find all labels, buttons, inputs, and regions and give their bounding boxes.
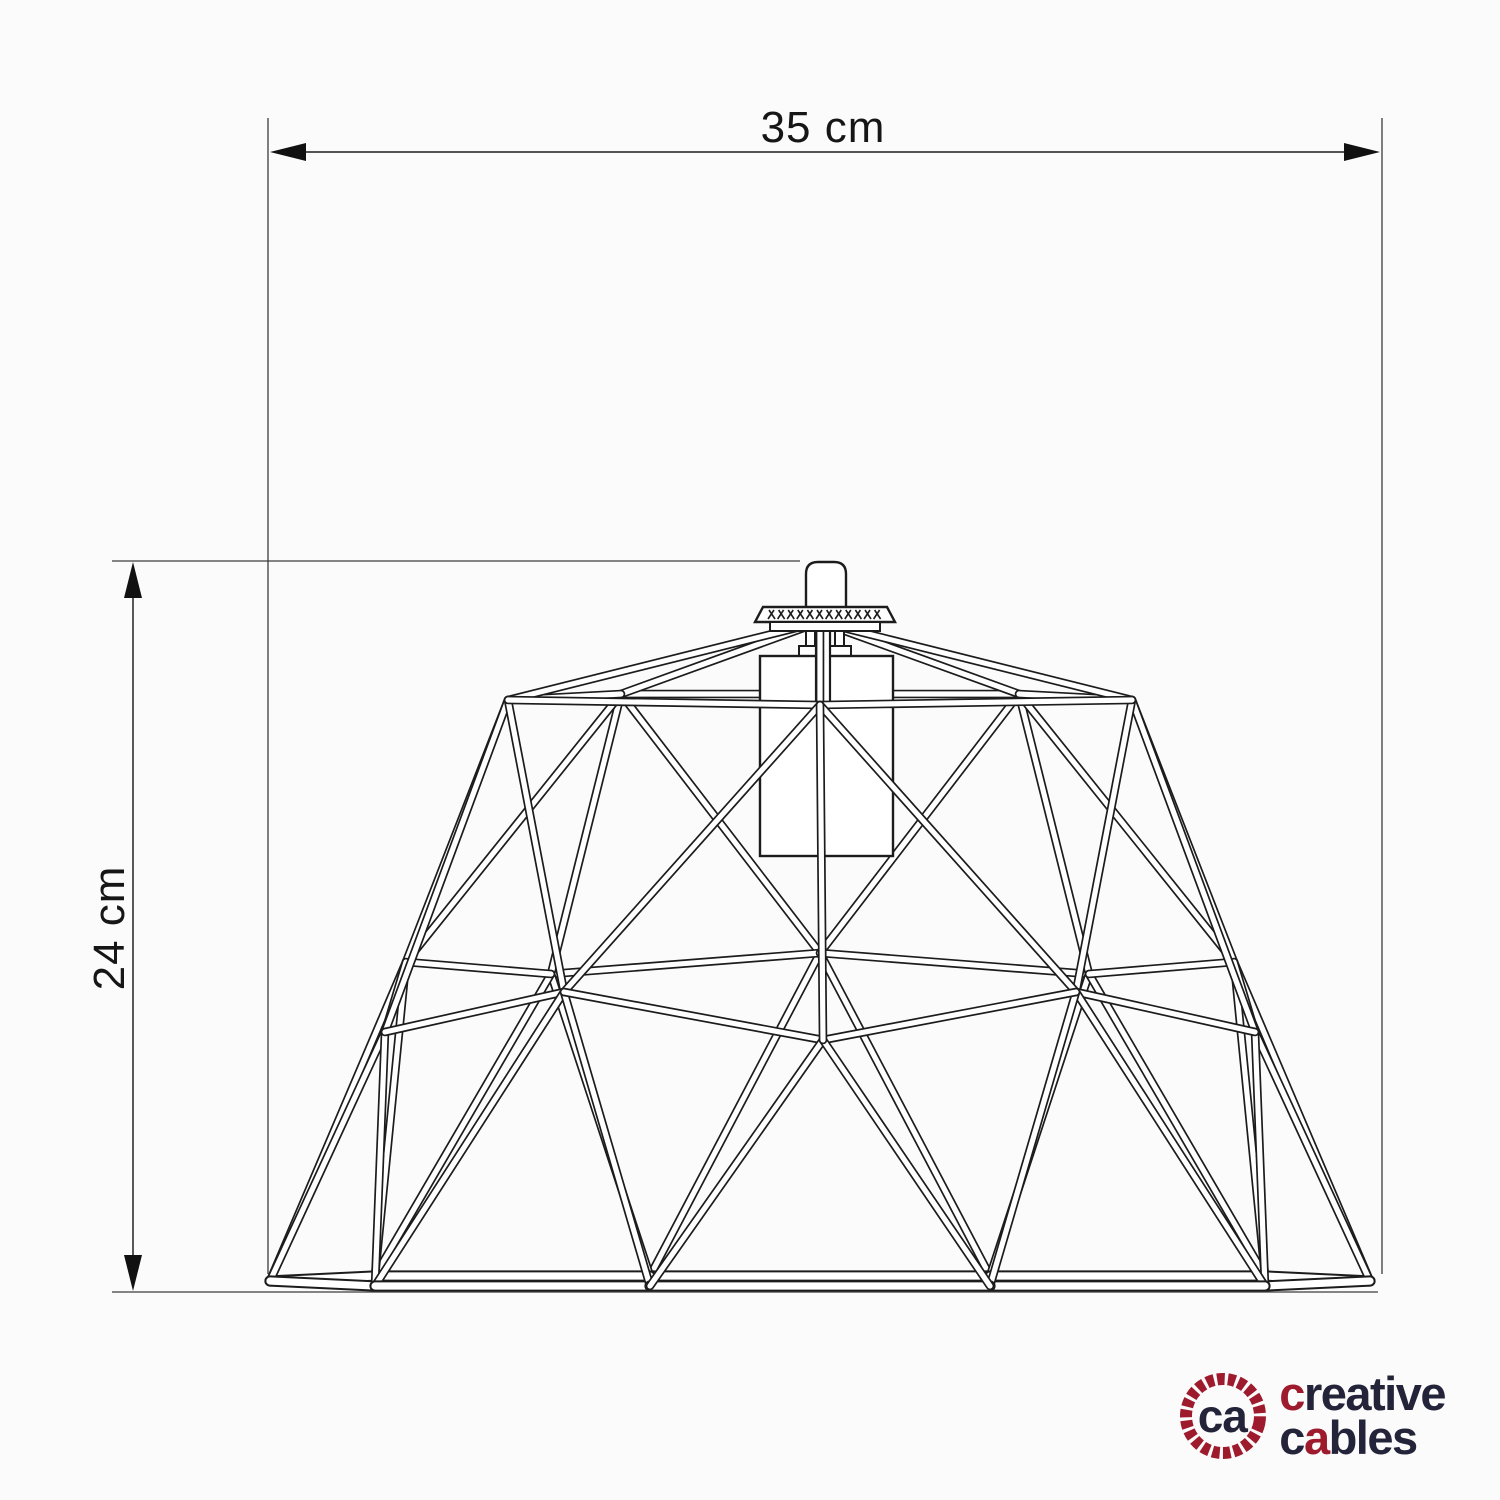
arrow-right-icon <box>1344 143 1380 161</box>
cage-strut <box>1255 1032 1370 1281</box>
arrow-left-icon <box>270 143 306 161</box>
cage-strut <box>270 1281 375 1286</box>
top-mount <box>755 562 895 631</box>
cage-strut <box>650 1040 823 1286</box>
logo-line2-c: c <box>1279 1411 1304 1464</box>
logo-line2-text: bles <box>1329 1411 1417 1464</box>
logo-line2: cables <box>1279 1416 1445 1460</box>
cage-strut <box>1076 992 1265 1286</box>
cage-strut <box>564 992 650 1286</box>
dimension-drawing: 35 cm 24 cm <box>0 0 1500 1500</box>
dimension-height <box>112 561 1378 1292</box>
height-label: 24 cm <box>85 866 134 991</box>
cage-strut <box>823 1040 990 1286</box>
cage-strut <box>270 1032 385 1281</box>
logo-line2-accent: a <box>1304 1411 1329 1464</box>
cage-front-struts <box>270 622 1370 1286</box>
cage-strut <box>508 700 564 992</box>
arrow-down-icon <box>124 1255 142 1291</box>
cage-strut <box>820 953 990 1276</box>
logo-wordmark: creative cables <box>1279 1372 1445 1459</box>
brand-logo: ca creative cables <box>1177 1370 1445 1462</box>
mount-plate-top <box>755 607 895 622</box>
cage-strut <box>375 992 564 1286</box>
logo-line1: creative <box>1279 1372 1445 1416</box>
mount-plate-lip <box>770 622 880 631</box>
arrow-up-icon <box>124 562 142 598</box>
cage-strut <box>1132 700 1255 1032</box>
cage-strut <box>385 700 508 1032</box>
cage-strut <box>820 705 823 1040</box>
socket-flange-right <box>830 646 851 656</box>
cage-strut <box>990 992 1076 1286</box>
logo-monogram: ca <box>1198 1393 1247 1439</box>
cage-strut <box>1076 700 1132 992</box>
width-label: 35 cm <box>761 103 886 152</box>
logo-rope-ring: ca <box>1177 1370 1269 1462</box>
cap-nipple <box>806 562 846 609</box>
cage-strut <box>650 953 820 1276</box>
cage-strut <box>823 992 1076 1040</box>
cage-strut <box>1265 1281 1370 1286</box>
